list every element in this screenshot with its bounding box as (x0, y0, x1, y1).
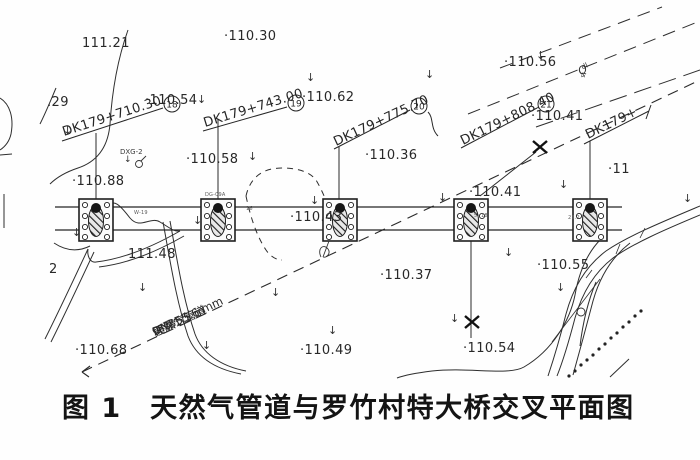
down-arrow-icon: ↓ (450, 312, 459, 325)
down-arrow-icon: ↓ (559, 178, 568, 191)
pier-tag-label: 21.2 (568, 215, 580, 221)
pier-tag-label: 5. 18 (474, 213, 488, 219)
geology-unit-label: Q4dl (576, 61, 593, 80)
down-arrow-icon: ↓ (306, 71, 315, 84)
spot-elevation-label: 2 (49, 262, 58, 277)
spot-elevation-label: ·110.41 (531, 109, 583, 124)
spot-elevation-label: ·110.36 (365, 148, 417, 163)
plan-figure: DK179+710.30 DK179+743.00 DK179+775.70 D… (0, 0, 700, 460)
down-arrow-icon: ↓ (556, 281, 565, 294)
down-arrow-icon: ↓ (310, 194, 319, 207)
spot-elevation-label: .29 (47, 95, 69, 110)
spot-elevation-label: ·110.62 (302, 90, 354, 105)
down-arrow-icon: ↓ (683, 192, 692, 205)
spot-elevation-label: ·110.43 (290, 210, 342, 225)
down-arrow-icon: ↓ (72, 226, 81, 239)
down-arrow-icon: ↓ (193, 214, 202, 227)
down-arrow-icon: ↓ (202, 339, 211, 352)
pier-tag-label: 16 (246, 206, 253, 212)
down-arrow-icon: ↓ (425, 68, 434, 81)
pipeline-depth-label: 埋深1.5 m (150, 302, 208, 340)
spot-elevation-label: ·110.49 (300, 343, 352, 358)
down-arrow-icon: ↓ (438, 191, 447, 204)
spot-elevation-label: ·11 (608, 162, 630, 177)
spot-elevation-label: ·110.37 (380, 268, 432, 283)
spot-elevation-label: 111.21 (82, 36, 130, 51)
spot-elevation-label: 111.48 (128, 247, 176, 262)
spot-elevation-label: ·110.88 (72, 174, 124, 189)
down-arrow-icon: ↓ (328, 324, 337, 337)
down-arrow-icon: ↓ (63, 124, 72, 137)
spot-elevation-label: ·110.68 (75, 343, 127, 358)
pier-tag-label: W-19 (134, 210, 148, 216)
down-arrow-icon: ↓ (536, 49, 545, 62)
annotation-overlay: DXG-2 ↓ 天然气管道 QR阀 DN355.6 mm 埋深1.5 m Q4d… (0, 0, 700, 460)
down-arrow-icon: ↓ (138, 281, 147, 294)
down-arrow-icon: ↓ (248, 150, 257, 163)
down-arrow-icon: ↓ (271, 286, 280, 299)
spot-elevation-label: ·110.30 (224, 29, 276, 44)
down-arrow-icon: ↓ (504, 246, 513, 259)
spot-elevation-label: ·110.55 (537, 258, 589, 273)
down-arrow-icon: ↓ (197, 93, 206, 106)
spot-elevation-label: ·110.58 (186, 152, 238, 167)
figure-caption: 图 1 天然气管道与罗竹村特大桥交叉平面图 (62, 386, 635, 425)
spot-elevation-label: ·110.41 (469, 185, 521, 200)
spot-elevation-label: ·110.54 (463, 341, 515, 356)
down-arrow-icon: ↓ (124, 155, 132, 165)
spot-elevation-label: ·110.54 (145, 93, 197, 108)
spot-elevation-label: ·110.56 (504, 55, 556, 70)
pier-tag-label: DG-09A (205, 192, 226, 198)
